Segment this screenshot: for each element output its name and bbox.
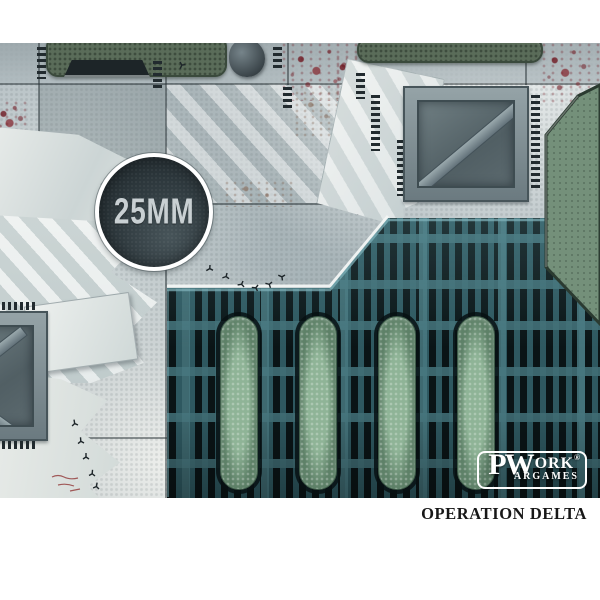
brand-letters-ork: ORK [535,456,574,472]
vent-pad-right [357,43,543,63]
tile-groove [525,61,527,85]
vent-fins [356,73,365,99]
hatch-panel-right [403,86,529,202]
vent-fins [153,61,162,91]
brand-logo: P W ORK ® ARGAMES [477,451,587,489]
vent-fins [283,87,292,111]
vent-fins [2,441,38,449]
vent-fins [371,95,380,151]
vent-fins [531,95,540,191]
mat-caption: OPERATION DELTA [421,504,587,524]
tile-groove [0,83,600,85]
landing-pad-pill [299,316,337,490]
vent-fins [2,302,38,310]
tile-groove [287,43,289,85]
hatch-inner-panel [417,100,515,188]
scale-badge: 25MM [95,153,213,271]
hatch-panel-bottom-left [0,311,48,441]
debris-boulder [229,43,265,77]
registered-mark: ® [574,454,580,462]
recessed-slot-vent [64,60,150,77]
product-page: { "image": { "description": "Sci-fi indu… [0,0,600,600]
tile-groove [165,43,167,498]
vent-fins [37,47,46,79]
hatch-inner-panel [0,325,34,427]
hatch-diagonal-brace [0,326,28,404]
brand-wargames-suffix: ARGAMES [514,471,580,482]
mat-photo: 25MM P W ORK ® ARGAMES [0,43,600,498]
landing-pad-pill [220,316,258,490]
landing-pad-pill [378,316,416,490]
vent-fins [273,47,282,71]
hatch-diagonal-brace [417,100,515,188]
scale-badge-label: 25MM [114,194,195,230]
hatch-diagonal-brace [0,373,33,427]
